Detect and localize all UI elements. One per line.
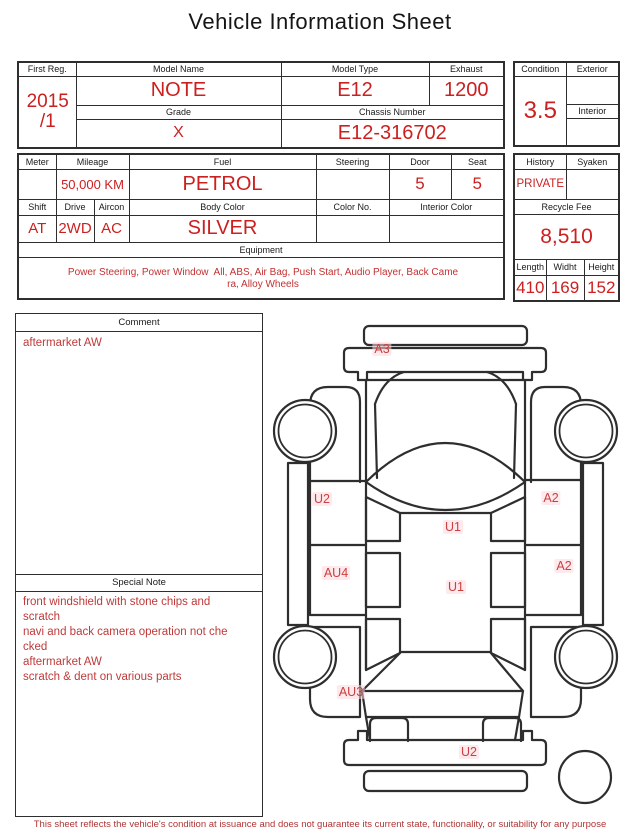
- steering-value: [316, 169, 389, 199]
- model-type-label: Model Type: [281, 62, 429, 76]
- seat-value: 5: [451, 169, 504, 199]
- fuel-label: Fuel: [129, 154, 316, 169]
- damage-label-u2-front-left: U2: [312, 492, 332, 506]
- width-value: 169: [546, 275, 584, 301]
- color-no-label: Color No.: [316, 199, 389, 215]
- rear-panel-sides: [366, 717, 519, 740]
- chassis-number-label: Chassis Number: [281, 105, 504, 119]
- exhaust-label: Exhaust: [429, 62, 504, 76]
- model-type-value: E12: [281, 76, 429, 105]
- damage-label-a2-rear-right-door: A2: [554, 559, 573, 573]
- first-reg-year: 2015: [19, 92, 76, 112]
- body-color-label: Body Color: [129, 199, 316, 215]
- interior-label: Interior: [566, 104, 619, 118]
- equipment-value: Power Steering, Power Window All, ABS, A…: [18, 257, 504, 299]
- exhaust-value: 1200: [429, 76, 504, 105]
- comment-text: aftermarket AW: [23, 336, 255, 351]
- shift-label: Shift: [18, 199, 56, 215]
- side-sill-left: [288, 463, 308, 625]
- side-sill-right: [583, 463, 603, 625]
- syaken-value: [566, 169, 619, 199]
- grade-label: Grade: [76, 105, 281, 119]
- recycle-fee-label: Recycle Fee: [514, 199, 619, 214]
- meter-label: Meter: [18, 154, 56, 169]
- special-note-line: front windshield with stone chips and: [23, 595, 255, 610]
- wheel-rear-left: [274, 626, 336, 688]
- aircon-label: Aircon: [94, 199, 129, 215]
- vehicle-id-table: First Reg. Model Name Model Type Exhaust…: [17, 61, 505, 149]
- drive-label: Drive: [56, 199, 94, 215]
- condition-value: 3.5: [514, 76, 566, 146]
- exterior-value: [566, 76, 619, 104]
- window-frame-right: [491, 553, 525, 607]
- meter-value: [18, 169, 56, 199]
- damage-label-u2-rear-bumper: U2: [459, 745, 479, 759]
- seat-label: Seat: [451, 154, 504, 169]
- page-title: Vehicle Information Sheet: [0, 9, 640, 35]
- tail-lamp-left: [370, 718, 408, 741]
- color-no-value: [316, 215, 389, 242]
- first-reg-label: First Reg.: [18, 62, 76, 76]
- length-label: Length: [514, 259, 546, 275]
- c-pillar-right: [491, 619, 525, 670]
- b-pillar-left: [366, 497, 400, 541]
- history-value: PRIVATE: [514, 169, 566, 199]
- b-pillar-right: [491, 497, 525, 541]
- chassis-number-value: E12-316702: [281, 119, 504, 148]
- equipment-line-2: ra, Alloy Wheels: [19, 279, 503, 291]
- equipment-label: Equipment: [18, 242, 504, 257]
- steering-label: Steering: [316, 154, 389, 169]
- aircon-value: AC: [94, 215, 129, 242]
- length-value: 410: [514, 275, 546, 301]
- first-reg-value: 2015 /1: [18, 76, 76, 148]
- history-label: History: [514, 154, 566, 169]
- syaken-label: Syaken: [566, 154, 619, 169]
- equipment-line-1: Power Steering, Power Window All, ABS, A…: [19, 265, 503, 279]
- car-damage-diagram: A3 U2 A2 U1 AU4 A2 U1 AU3 U2: [270, 310, 636, 807]
- shift-value: AT: [18, 215, 56, 242]
- special-note-header: Special Note: [16, 574, 262, 592]
- a-pillar-right: [514, 404, 516, 478]
- damage-label-au3-hatch: AU3: [337, 685, 365, 699]
- interior-value: [566, 118, 619, 146]
- height-label: Height: [584, 259, 619, 275]
- hatch-flare-left: [362, 653, 400, 691]
- wheel-rear-right: [555, 626, 617, 688]
- spec-table: Meter Mileage Fuel Steering Door Seat 50…: [17, 153, 505, 300]
- car-outline-drawing: [270, 310, 636, 807]
- interior-color-label: Interior Color: [389, 199, 504, 215]
- body-color-value: SILVER: [129, 215, 316, 242]
- height-value: 152: [584, 275, 619, 301]
- model-name-label: Model Name: [76, 62, 281, 76]
- damage-label-a2-front-right: A2: [541, 491, 560, 505]
- mileage-value: 50,000 KM: [56, 169, 129, 199]
- comment-box: Comment aftermarket AW Special Note fron…: [15, 313, 263, 817]
- interior-color-value: [389, 215, 504, 242]
- special-note-line: navi and back camera operation not che: [23, 625, 255, 640]
- grade-value: X: [76, 119, 281, 148]
- comment-body: aftermarket AW: [16, 332, 262, 574]
- wheel-front-right: [555, 400, 617, 462]
- hood-arc-left: [375, 372, 404, 404]
- special-note-line: scratch & dent on various parts: [23, 670, 255, 685]
- model-name-value: NOTE: [76, 76, 281, 105]
- history-panel: History Syaken PRIVATE Recycle Fee 8,510…: [513, 153, 620, 302]
- door-value: 5: [389, 169, 451, 199]
- recycle-fee-value: 8,510: [514, 214, 619, 259]
- hatch-flare-right: [491, 653, 523, 691]
- width-label: Widht: [546, 259, 584, 275]
- special-note-body: front windshield with stone chips and sc…: [16, 592, 262, 816]
- door-label: Door: [389, 154, 451, 169]
- comment-header: Comment: [16, 314, 262, 332]
- special-note-line: aftermarket AW: [23, 655, 255, 670]
- drive-value: 2WD: [56, 215, 94, 242]
- spare-tire: [559, 751, 611, 803]
- a-pillar-left: [375, 404, 377, 478]
- exterior-label: Exterior: [566, 62, 619, 76]
- windshield: [366, 443, 525, 510]
- condition-panel: Condition Exterior 3.5 Interior: [513, 61, 620, 147]
- vehicle-information-sheet: Vehicle Information Sheet First Reg. Mod…: [0, 0, 640, 835]
- disclaimer-text: This sheet reflects the vehicle's condit…: [0, 819, 640, 830]
- condition-label: Condition: [514, 62, 566, 76]
- wheel-front-left: [274, 400, 336, 462]
- c-pillar-left: [366, 619, 400, 670]
- damage-label-u1-roof: U1: [443, 520, 463, 534]
- hood-arc-right: [487, 372, 516, 404]
- rear-hatch: [362, 691, 523, 717]
- mileage-label: Mileage: [56, 154, 129, 169]
- window-frame-left: [366, 553, 400, 607]
- damage-label-au4-rear-left-door: AU4: [322, 566, 350, 580]
- fuel-value: PETROL: [129, 169, 316, 199]
- damage-label-u1-lower: U1: [446, 580, 466, 594]
- rear-under-strip: [364, 771, 527, 791]
- special-note-line: cked: [23, 640, 255, 655]
- damage-label-a3: A3: [372, 342, 391, 356]
- special-note-line: scratch: [23, 610, 255, 625]
- first-reg-month: /1: [19, 112, 76, 132]
